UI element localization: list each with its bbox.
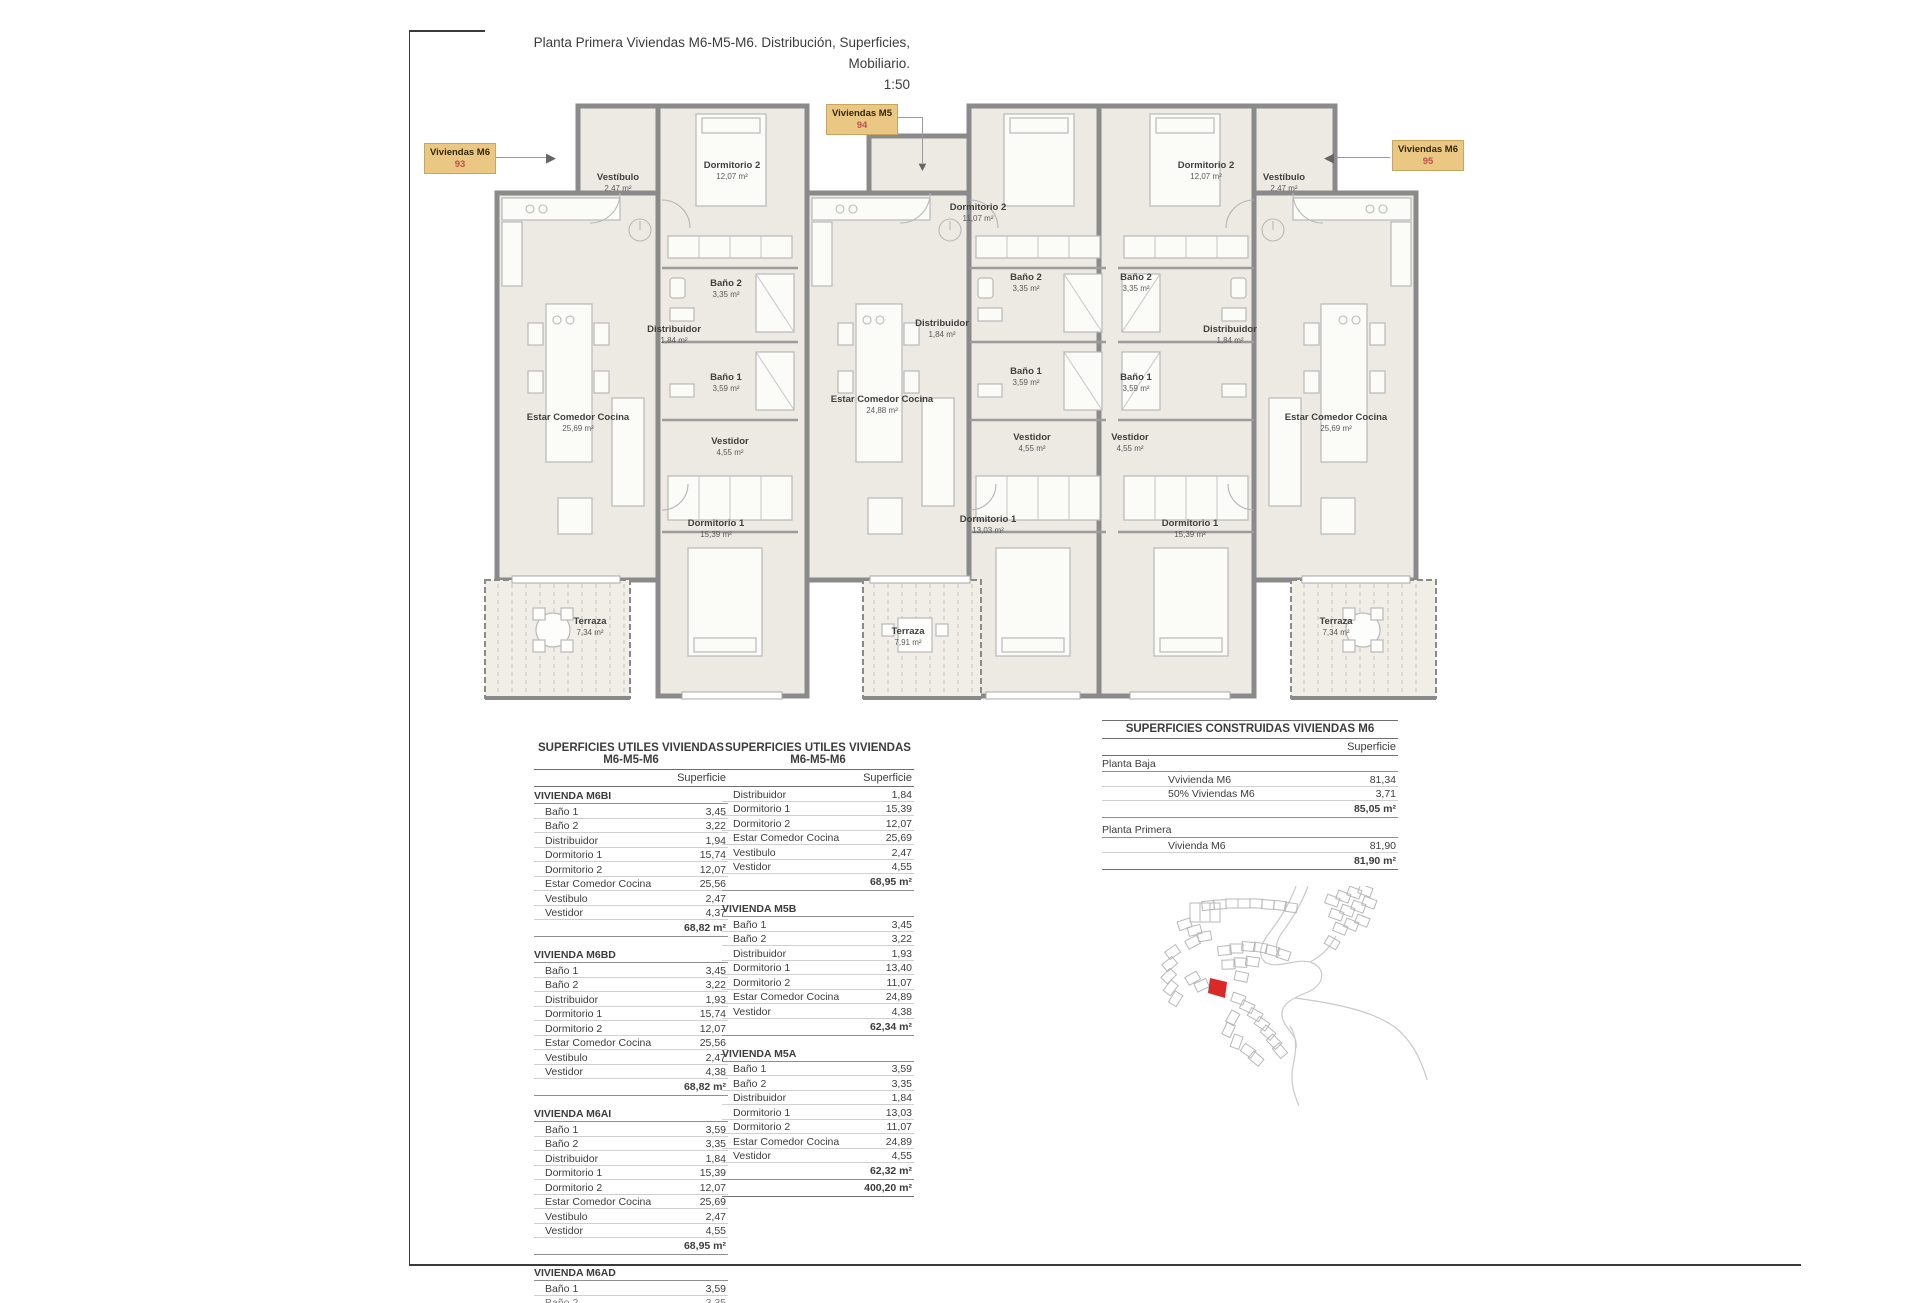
table-row: Dormitorio 113,40: [722, 961, 914, 976]
section-total: 68,82 m²: [534, 1079, 728, 1096]
sheet-border-top: [409, 30, 485, 32]
table-row: Vestibulo2,47: [534, 1050, 728, 1065]
room-label-estar-m5: Estar Comedor Cocina24,88 m²: [831, 394, 933, 417]
table-superficies-utiles-2: SUPERFICIES UTILES VIVIENDAS M6-M5-M6 Su…: [722, 740, 914, 1197]
table-row: Estar Comedor Cocina25,56: [534, 1036, 728, 1051]
table-row: Distribuidor1,93: [722, 946, 914, 961]
table-row: Dormitorio 211,07: [722, 1120, 914, 1135]
table-row: Dormitorio 115,39: [722, 802, 914, 817]
leader-line-93: [496, 157, 548, 158]
room-label-terraza-left: Terraza7,34 m²: [573, 616, 606, 639]
table-row: Vestidor4,55: [722, 1149, 914, 1164]
truncated-row: Baño 23,35: [534, 1296, 728, 1303]
room-label-bano2-right: Baño 23,35 m²: [1120, 272, 1152, 295]
table-row: Dormitorio 212,07: [534, 1180, 728, 1195]
table-row: Baño 13,59: [534, 1281, 728, 1296]
sheet-border-left: [409, 30, 410, 1266]
table-superficies-construidas: SUPERFICIES CONSTRUIDAS VIVIENDAS M6 Sup…: [1102, 720, 1398, 870]
table-row: Baño 23,35: [534, 1137, 728, 1152]
section-total: 68,82 m²: [534, 920, 728, 937]
table-row: Vestibulo2,47: [722, 845, 914, 860]
arrow-left-icon: ◀: [1324, 151, 1334, 164]
room-label-bano1-m5: Baño 13,59 m²: [1010, 366, 1042, 389]
room-label-estar-left: Estar Comedor Cocina25,69 m²: [527, 412, 629, 435]
section-header: VIVIENDA M6AI: [534, 1105, 728, 1122]
section-header: VIVIENDA M6BI: [534, 787, 728, 804]
table-row: Dormitorio 212,07: [722, 816, 914, 831]
table-row: Dormitorio 115,74: [534, 1007, 728, 1022]
table-subtitle: M6-M5-M6: [722, 754, 914, 770]
room-label-bano2-left: Baño 23,35 m²: [710, 278, 742, 301]
room-label-vestidor-left: Vestidor4,55 m²: [711, 436, 749, 459]
leader-line-95: [1336, 157, 1390, 158]
table-row: Vestibulo2,47: [534, 1209, 728, 1224]
site-map-highlight: [1208, 978, 1227, 998]
table-row: Dormitorio 115,39: [534, 1166, 728, 1181]
table-row: Vestidor4,38: [534, 1065, 728, 1080]
table-row: Estar Comedor Cocina24,89: [722, 990, 914, 1005]
floor-plan: Vestíbulo2,47 m² Dormitorio 212,07 m² Ba…: [430, 80, 1490, 730]
section-header: VIVIENDA M6AD: [534, 1264, 728, 1281]
section-total: 68,95 m²: [534, 1238, 728, 1255]
arrow-down-icon: ▼: [916, 160, 929, 173]
section-header: VIVIENDA M5B: [722, 900, 914, 917]
table-row: Baño 13,45: [722, 917, 914, 932]
table-title: SUPERFICIES UTILES VIVIENDAS: [722, 740, 914, 754]
section-header: VIVIENDA M5A: [722, 1045, 914, 1062]
section-total: 62,32 m²: [722, 1163, 914, 1180]
table-row: Dormitorio 211,07: [722, 975, 914, 990]
room-label-bano1-right: Baño 13,59 m²: [1120, 372, 1152, 395]
leader-line-94b: [922, 117, 923, 163]
room-label-vestibulo-right: Vestíbulo2,47 m²: [1263, 172, 1305, 195]
room-label-bano1-left: Baño 13,59 m²: [710, 372, 742, 395]
table-row: Vestidor4,38: [722, 1004, 914, 1019]
table-subtitle: M6-M5-M6: [534, 754, 728, 770]
section-total: 62,34 m²: [722, 1019, 914, 1036]
table-row: Baño 13,59: [534, 1122, 728, 1137]
table-row: Estar Comedor Cocina25,69: [722, 831, 914, 846]
table-row: Vestidor4,37: [534, 906, 728, 921]
table-row: Distribuidor1,94: [534, 833, 728, 848]
table-row: Vivienda M681,90: [1102, 838, 1398, 853]
table-row: Vestibulo2,47: [534, 891, 728, 906]
section-header: VIVIENDA M6BD: [534, 946, 728, 963]
table-row: Distribuidor1,84: [722, 1091, 914, 1106]
table-row: Baño 23,22: [534, 978, 728, 993]
table-row: Vvivienda M681,34: [1102, 772, 1398, 787]
room-label-dormitorio1-right: Dormitorio 115,39 m²: [1162, 518, 1218, 541]
table-row: Vestidor4,55: [534, 1224, 728, 1239]
room-label-vestibulo-left: Vestíbulo2,47 m²: [597, 172, 639, 195]
table-title: SUPERFICIES CONSTRUIDAS VIVIENDAS M6: [1102, 720, 1398, 739]
table-row: Dormitorio 115,74: [534, 848, 728, 863]
column-header: Superficie: [722, 770, 914, 787]
table-row: Estar Comedor Cocina25,69: [534, 1195, 728, 1210]
room-label-estar-right: Estar Comedor Cocina25,69 m²: [1285, 412, 1387, 435]
room-label-distribuidor-left: Distribuidor1,84 m²: [647, 324, 701, 347]
site-map-roads: [1261, 886, 1427, 1106]
sheet-title: Planta Primera Viviendas M6-M5-M6. Distr…: [498, 33, 910, 75]
table-row: Estar Comedor Cocina25,56: [534, 877, 728, 892]
table-row: Distribuidor1,84: [722, 787, 914, 802]
room-label-terraza-m5: Terraza7,91 m²: [891, 626, 924, 649]
table-row: Baño 13,45: [534, 963, 728, 978]
site-map: [1130, 886, 1430, 1116]
arrow-right-icon: ▶: [546, 151, 556, 164]
unit-tag-94: Viviendas M5 94: [826, 104, 898, 135]
table-row: Dormitorio 212,07: [534, 1021, 728, 1036]
section-total: 68,95 m²: [722, 874, 914, 891]
room-label-dormitorio2-m5: Dormitorio 211,07 m²: [950, 202, 1006, 225]
unit-tag-95: Viviendas M6 95: [1392, 140, 1464, 171]
unit-tag-93: Viviendas M6 93: [424, 143, 496, 174]
room-label-bano2-m5: Baño 23,35 m²: [1010, 272, 1042, 295]
table-row: Vestidor4,55: [722, 860, 914, 875]
room-label-distribuidor-right: Distribuidor1,84 m²: [1203, 324, 1257, 347]
room-label-vestidor-right: Vestidor4,55 m²: [1111, 432, 1149, 455]
table-row: Distribuidor1,93: [534, 992, 728, 1007]
group-total: 81,90 m²: [1102, 853, 1398, 870]
column-header: Superficie: [534, 770, 728, 787]
room-label-terraza-right: Terraza7,34 m²: [1319, 616, 1352, 639]
column-header: Superficie: [1102, 739, 1398, 756]
table-row: Dormitorio 113,03: [722, 1105, 914, 1120]
room-label-dormitorio2-right: Dormitorio 212,07 m²: [1178, 160, 1234, 183]
table-row: Baño 23,22: [534, 819, 728, 834]
room-label-dormitorio1-left: Dormitorio 115,39 m²: [688, 518, 744, 541]
table-row: Baño 13,45: [534, 804, 728, 819]
group-header: Planta Baja: [1102, 756, 1398, 772]
table-row: Baño 23,22: [722, 932, 914, 947]
room-label-dormitorio1-m5: Dormitorio 113,03 m²: [960, 514, 1016, 537]
table-title: SUPERFICIES UTILES VIVIENDAS: [534, 740, 728, 754]
leader-line-94a: [898, 117, 923, 118]
room-label-vestidor-m5: Vestidor4,55 m²: [1013, 432, 1051, 455]
room-label-dormitorio2-left: Dormitorio 212,07 m²: [704, 160, 760, 183]
group-header: Planta Primera: [1102, 822, 1398, 838]
table-row: Dormitorio 212,07: [534, 862, 728, 877]
table-superficies-utiles-1: SUPERFICIES UTILES VIVIENDAS M6-M5-M6 Su…: [534, 740, 728, 1303]
grand-total: 400,20 m²: [722, 1180, 914, 1197]
group-total: 85,05 m²: [1102, 801, 1398, 818]
table-row: Baño 13,59: [722, 1062, 914, 1077]
room-label-distribuidor-m5: Distribuidor1,84 m²: [915, 318, 969, 341]
site-map-buildings: [1161, 886, 1377, 1066]
table-row: Baño 23,35: [722, 1076, 914, 1091]
table-row: Distribuidor1,84: [534, 1151, 728, 1166]
table-row: Estar Comedor Cocina24,89: [722, 1134, 914, 1149]
table-row: 50% Viviendas M63,71: [1102, 787, 1398, 802]
